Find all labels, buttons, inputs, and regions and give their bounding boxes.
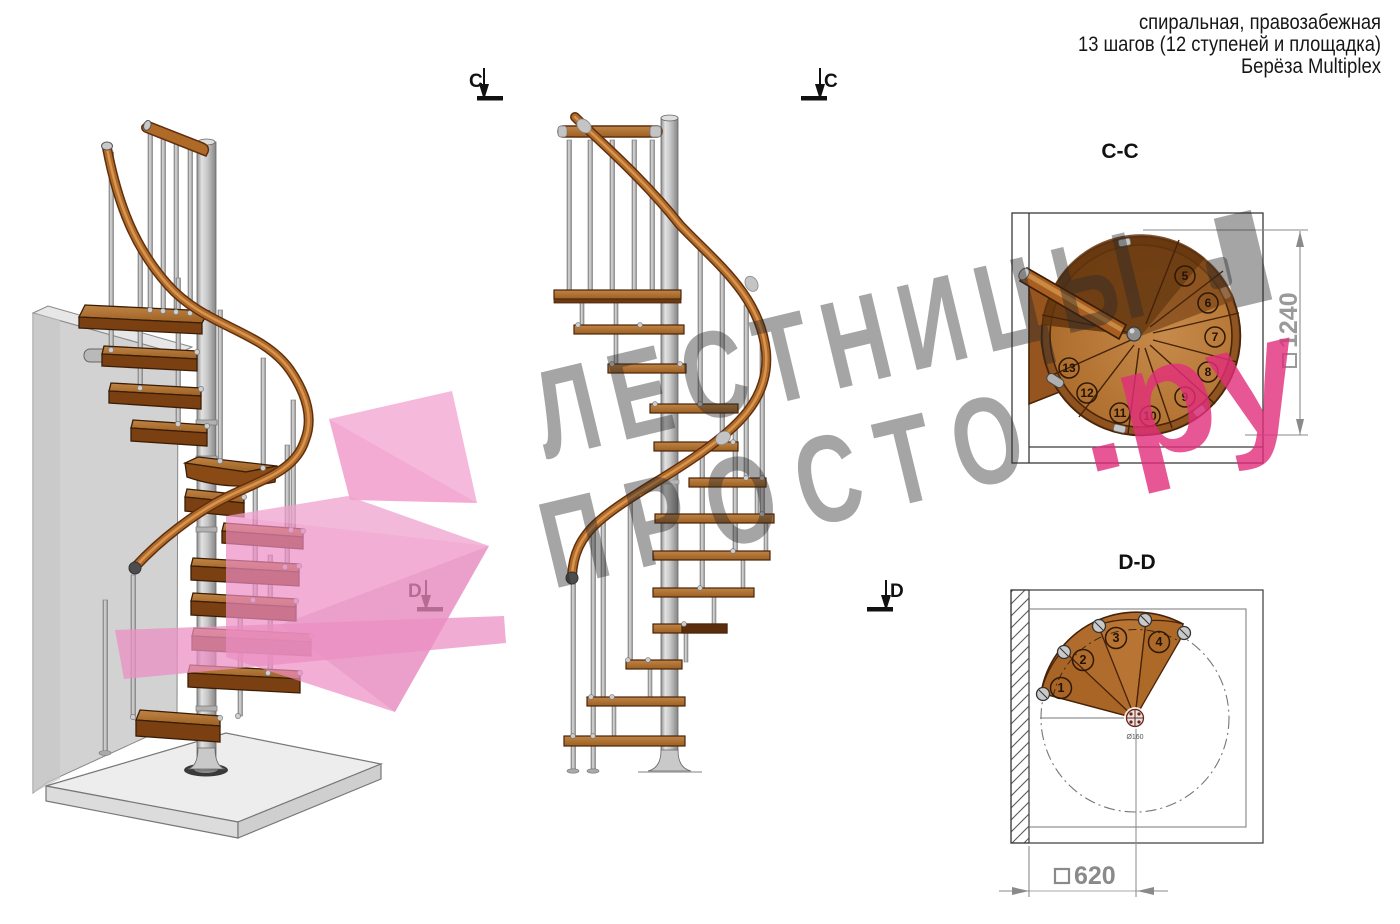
- svg-text:5: 5: [1182, 269, 1189, 283]
- svg-text:1: 1: [1058, 681, 1065, 695]
- svg-text:C-C: C-C: [1101, 140, 1138, 163]
- svg-text:D-D: D-D: [1118, 551, 1155, 574]
- svg-text:спиральная, правозабежная: спиральная, правозабежная: [1139, 11, 1381, 34]
- svg-text:D: D: [890, 581, 904, 602]
- svg-text:C: C: [824, 71, 838, 92]
- svg-text:2: 2: [1080, 653, 1087, 667]
- svg-text:13 шагов (12 ступеней и площад: 13 шагов (12 ступеней и площадка): [1078, 33, 1381, 56]
- svg-text:4: 4: [1156, 635, 1163, 649]
- svg-text:620: 620: [1074, 862, 1116, 890]
- svg-text:Берёза Multiplex: Берёза Multiplex: [1241, 55, 1381, 78]
- svg-text:Ø160: Ø160: [1126, 734, 1143, 741]
- svg-text:3: 3: [1113, 631, 1120, 645]
